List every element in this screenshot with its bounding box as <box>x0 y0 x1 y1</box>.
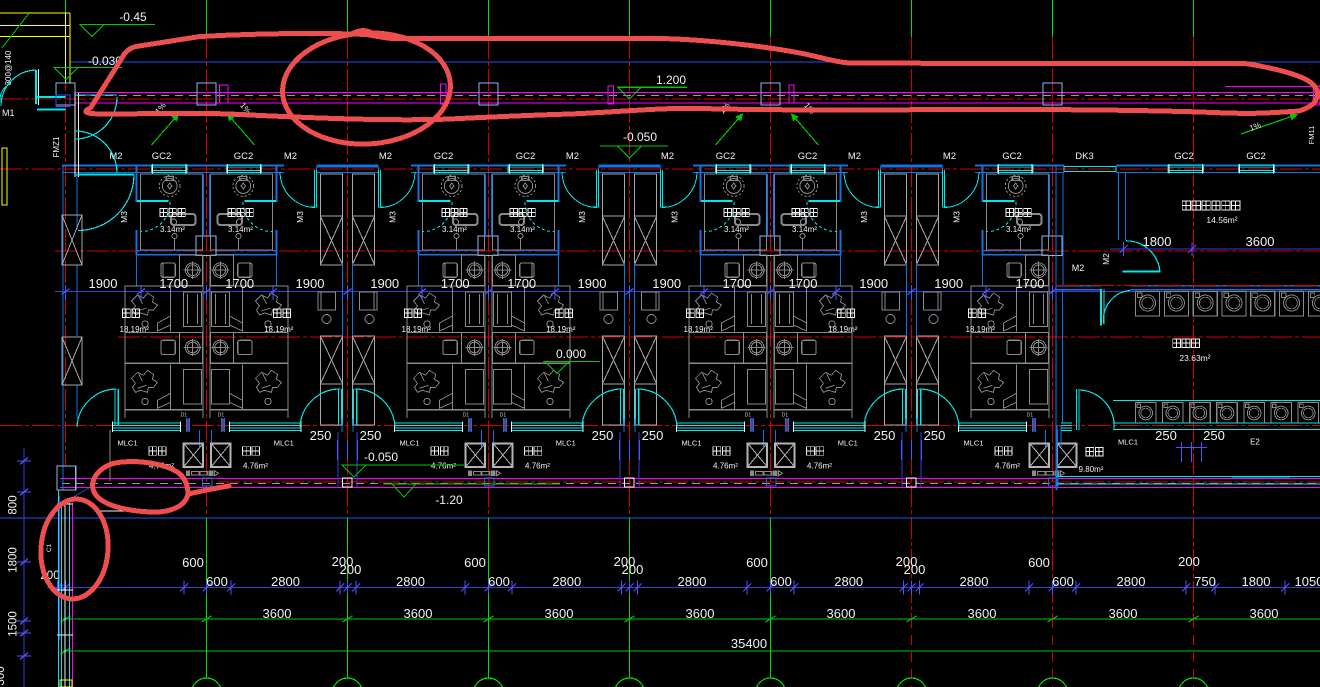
svg-text:600: 600 <box>206 574 228 589</box>
svg-text:M1: M1 <box>2 108 15 118</box>
svg-text:3.14m²: 3.14m² <box>792 225 817 234</box>
svg-text:M2: M2 <box>566 151 579 162</box>
svg-text:200: 200 <box>622 562 644 577</box>
svg-text:3600: 3600 <box>1109 606 1138 621</box>
svg-text:2800: 2800 <box>678 574 707 589</box>
svg-text:GC2: GC2 <box>798 151 818 162</box>
svg-text:3600: 3600 <box>686 606 715 621</box>
svg-text:600: 600 <box>746 555 768 570</box>
svg-text:1700: 1700 <box>723 276 752 291</box>
svg-text:1050: 1050 <box>1295 574 1320 589</box>
svg-text:3600: 3600 <box>263 606 292 621</box>
svg-text:750: 750 <box>1194 574 1216 589</box>
svg-text:18.19m²: 18.19m² <box>684 325 714 334</box>
svg-text:2800: 2800 <box>271 574 300 589</box>
svg-text:FM11: FM11 <box>1307 126 1316 145</box>
svg-text:1500: 1500 <box>8 611 20 637</box>
svg-text:D1: D1 <box>745 413 752 419</box>
svg-text:GC2: GC2 <box>1174 151 1194 162</box>
svg-text:600: 600 <box>1052 574 1074 589</box>
svg-text:D1: D1 <box>1027 413 1034 419</box>
svg-text:4.76m²: 4.76m² <box>995 461 1020 470</box>
svg-text:M2: M2 <box>379 151 392 162</box>
svg-text:1700: 1700 <box>225 276 254 291</box>
svg-text:GC2: GC2 <box>234 151 254 162</box>
svg-text:3600: 3600 <box>827 606 856 621</box>
svg-text:1700: 1700 <box>441 276 470 291</box>
svg-text:3.14m²: 3.14m² <box>442 225 467 234</box>
svg-text:GC2: GC2 <box>1246 151 1266 162</box>
svg-text:250: 250 <box>1203 428 1225 443</box>
svg-text:4.76m²: 4.76m² <box>431 461 456 470</box>
svg-text:4.76m²: 4.76m² <box>243 461 268 470</box>
svg-text:14.56m²: 14.56m² <box>1206 215 1237 225</box>
svg-text:1800: 1800 <box>1242 574 1271 589</box>
svg-text:M2: M2 <box>661 151 674 162</box>
svg-text:300: 300 <box>0 666 7 685</box>
svg-text:MLC1: MLC1 <box>117 438 137 447</box>
svg-text:GC2: GC2 <box>152 151 172 162</box>
svg-text:18.19m²: 18.19m² <box>264 325 294 334</box>
svg-text:3600: 3600 <box>545 606 574 621</box>
svg-text:1900: 1900 <box>859 276 888 291</box>
svg-text:3.14m²: 3.14m² <box>228 225 253 234</box>
svg-text:-0.050: -0.050 <box>623 130 657 144</box>
svg-text:250: 250 <box>360 428 382 443</box>
svg-text:2800: 2800 <box>396 574 425 589</box>
svg-text:23.63m²: 23.63m² <box>1179 353 1210 363</box>
svg-text:250: 250 <box>642 428 664 443</box>
svg-text:GC2: GC2 <box>1002 151 1022 162</box>
svg-text:MLC1: MLC1 <box>1118 438 1138 447</box>
svg-text:M2: M2 <box>284 151 297 162</box>
svg-text:M2: M2 <box>1072 263 1085 273</box>
svg-text:200: 200 <box>340 562 362 577</box>
svg-text:GC2: GC2 <box>716 151 736 162</box>
svg-text:18.19m²: 18.19m² <box>828 325 858 334</box>
svg-text:250: 250 <box>924 428 946 443</box>
svg-text:M3: M3 <box>859 211 869 223</box>
svg-text:2800: 2800 <box>834 574 863 589</box>
svg-text:D1: D1 <box>500 413 507 419</box>
svg-text:200: 200 <box>1178 554 1200 569</box>
svg-text:600: 600 <box>1028 555 1050 570</box>
svg-text:-0.050: -0.050 <box>364 450 398 464</box>
svg-text:1900: 1900 <box>296 276 325 291</box>
svg-text:600: 600 <box>770 574 792 589</box>
svg-text:250: 250 <box>592 428 614 443</box>
svg-text:M2: M2 <box>1101 253 1111 265</box>
svg-text:M2: M2 <box>848 151 861 162</box>
svg-text:M2: M2 <box>109 151 122 162</box>
svg-text:2800: 2800 <box>960 574 989 589</box>
svg-text:3.14m²: 3.14m² <box>1006 225 1031 234</box>
svg-text:3600: 3600 <box>968 606 997 621</box>
svg-text:4.76m²: 4.76m² <box>525 461 550 470</box>
svg-text:3.14m²: 3.14m² <box>510 225 535 234</box>
svg-text:1.200: 1.200 <box>656 73 686 87</box>
svg-text:M3: M3 <box>670 211 680 223</box>
svg-text:600: 600 <box>488 574 510 589</box>
svg-text:1800: 1800 <box>1143 234 1172 249</box>
svg-text:9.80m²: 9.80m² <box>1079 465 1104 474</box>
svg-text:250: 250 <box>310 428 332 443</box>
svg-text:2800: 2800 <box>552 574 581 589</box>
svg-text:M3: M3 <box>577 211 587 223</box>
svg-text:200: 200 <box>904 562 926 577</box>
svg-text:1900: 1900 <box>934 276 963 291</box>
svg-text:250: 250 <box>874 428 896 443</box>
svg-text:M3: M3 <box>952 211 962 223</box>
svg-text:3.14m²: 3.14m² <box>724 225 749 234</box>
svg-text:18.19m²: 18.19m² <box>402 325 432 334</box>
svg-text:18.19m²: 18.19m² <box>546 325 576 334</box>
svg-text:GC2: GC2 <box>516 151 536 162</box>
svg-text:D1: D1 <box>218 413 225 419</box>
svg-text:600: 600 <box>182 555 204 570</box>
svg-text:1700: 1700 <box>1016 276 1045 291</box>
svg-text:18.19m²: 18.19m² <box>120 325 150 334</box>
svg-text:-0.45: -0.45 <box>119 10 147 24</box>
svg-text:MLC1: MLC1 <box>963 438 983 447</box>
svg-text:MLC1: MLC1 <box>399 438 419 447</box>
svg-text:35400: 35400 <box>731 636 767 651</box>
svg-text:1900: 1900 <box>370 276 399 291</box>
svg-text:3600: 3600 <box>1246 234 1275 249</box>
svg-text:250: 250 <box>1155 428 1177 443</box>
svg-text:M2: M2 <box>943 151 956 162</box>
svg-text:1900: 1900 <box>578 276 607 291</box>
svg-text:M3: M3 <box>295 211 305 223</box>
svg-text:D1: D1 <box>181 413 188 419</box>
svg-text:MLC1: MLC1 <box>274 438 294 447</box>
svg-text:18.19m²: 18.19m² <box>966 325 996 334</box>
svg-text:1700: 1700 <box>789 276 818 291</box>
svg-text:C1: C1 <box>46 543 53 552</box>
svg-text:MLC1: MLC1 <box>681 438 701 447</box>
svg-text:GC2: GC2 <box>434 151 454 162</box>
svg-text:4.76m²: 4.76m² <box>807 461 832 470</box>
svg-text:MLC1: MLC1 <box>556 438 576 447</box>
svg-text:D1: D1 <box>463 413 470 419</box>
svg-text:1700: 1700 <box>159 276 188 291</box>
svg-text:D1: D1 <box>782 413 789 419</box>
svg-text:3.14m²: 3.14m² <box>160 225 185 234</box>
svg-text:M3: M3 <box>388 211 398 223</box>
svg-text:1700: 1700 <box>507 276 536 291</box>
svg-text:1900: 1900 <box>89 276 118 291</box>
svg-text:E2: E2 <box>1250 438 1260 447</box>
svg-text:800: 800 <box>8 495 20 514</box>
svg-text:-1.20: -1.20 <box>435 493 463 507</box>
svg-text:1800: 1800 <box>8 547 20 573</box>
svg-text:600: 600 <box>464 555 486 570</box>
svg-text:1900: 1900 <box>652 276 681 291</box>
svg-text:3600: 3600 <box>404 606 433 621</box>
svg-text:4.76m²: 4.76m² <box>713 461 738 470</box>
svg-text:2800: 2800 <box>1117 574 1146 589</box>
svg-text:DK3: DK3 <box>1075 151 1093 162</box>
svg-text:MLC1: MLC1 <box>838 438 858 447</box>
svg-text:M3: M3 <box>119 211 129 223</box>
svg-text:FMZ1: FMZ1 <box>52 136 61 157</box>
svg-text:3600: 3600 <box>1250 606 1279 621</box>
svg-text:0.000: 0.000 <box>556 347 586 361</box>
